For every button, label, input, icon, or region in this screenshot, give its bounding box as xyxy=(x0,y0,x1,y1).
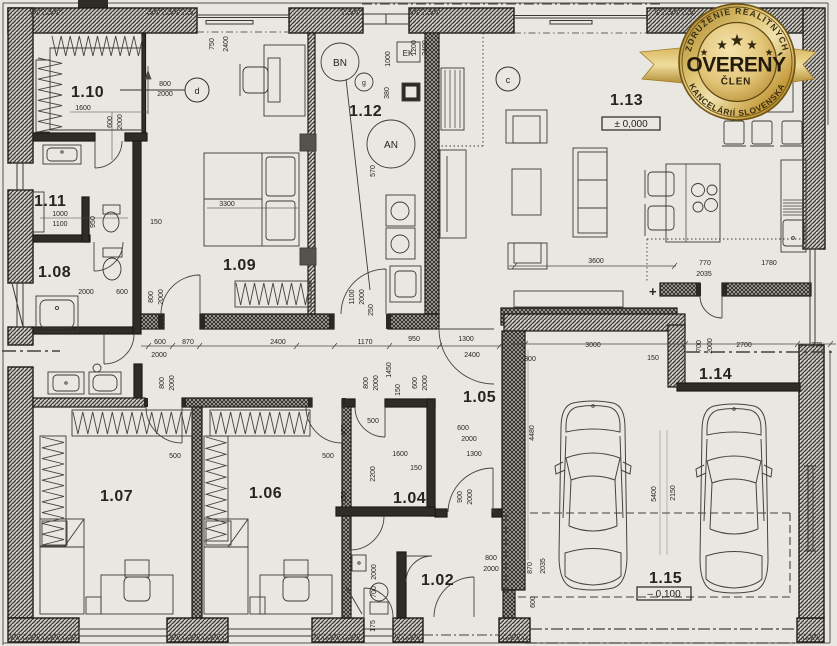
svg-text:1.13: 1.13 xyxy=(610,92,643,109)
svg-text:2400: 2400 xyxy=(422,40,429,56)
svg-text:ČLEN: ČLEN xyxy=(721,75,751,88)
svg-text:600: 600 xyxy=(154,339,166,346)
svg-text:1.11: 1.11 xyxy=(34,193,66,210)
svg-text:2000: 2000 xyxy=(157,91,173,98)
svg-text:2150: 2150 xyxy=(670,485,677,501)
svg-text:600: 600 xyxy=(116,289,128,296)
svg-text:800: 800 xyxy=(363,377,370,389)
svg-text:3300: 3300 xyxy=(219,201,235,208)
svg-text:1100: 1100 xyxy=(52,221,67,228)
svg-text:4480: 4480 xyxy=(529,425,536,441)
svg-text:1.12: 1.12 xyxy=(349,103,382,120)
svg-text:EK: EK xyxy=(403,49,414,58)
svg-text:1.10: 1.10 xyxy=(71,84,104,101)
svg-text:150: 150 xyxy=(341,491,348,503)
svg-text:500: 500 xyxy=(322,453,334,460)
svg-text:2035: 2035 xyxy=(540,558,547,574)
svg-text:1.07: 1.07 xyxy=(100,488,133,505)
svg-text:2035: 2035 xyxy=(696,271,712,278)
svg-text:5400: 5400 xyxy=(651,486,658,502)
svg-text:2400: 2400 xyxy=(464,352,480,359)
svg-text:950: 950 xyxy=(408,336,420,343)
svg-text:375: 375 xyxy=(811,342,823,349)
svg-text:870: 870 xyxy=(182,339,194,346)
svg-text:600: 600 xyxy=(457,425,469,432)
svg-text:800: 800 xyxy=(159,377,166,389)
svg-text:1000: 1000 xyxy=(385,51,392,67)
svg-text:800: 800 xyxy=(159,81,171,88)
svg-text:AN: AN xyxy=(384,140,398,151)
svg-text:150: 150 xyxy=(410,465,422,472)
svg-text:600: 600 xyxy=(530,596,537,608)
svg-text:700: 700 xyxy=(371,586,378,598)
svg-text:600: 600 xyxy=(107,116,114,128)
svg-text:150: 150 xyxy=(150,219,162,226)
svg-text:2000: 2000 xyxy=(373,375,380,391)
svg-text:2000: 2000 xyxy=(117,114,124,130)
svg-text:900: 900 xyxy=(457,491,464,503)
svg-text:1.15: 1.15 xyxy=(649,570,682,587)
svg-text:OVERENÝ: OVERENÝ xyxy=(686,53,786,77)
svg-text:± 0,000: ± 0,000 xyxy=(614,119,648,130)
svg-text:1.08: 1.08 xyxy=(38,264,71,281)
svg-text:g: g xyxy=(362,80,366,87)
svg-text:570: 570 xyxy=(370,165,377,177)
svg-text:150: 150 xyxy=(395,384,402,396)
svg-text:150: 150 xyxy=(341,424,348,436)
svg-text:2000: 2000 xyxy=(371,564,378,580)
svg-text:150: 150 xyxy=(647,355,659,362)
svg-text:2700: 2700 xyxy=(736,342,752,349)
svg-text:800: 800 xyxy=(485,555,497,562)
svg-text:+: + xyxy=(649,284,657,299)
svg-text:2000: 2000 xyxy=(707,338,714,354)
svg-text:175: 175 xyxy=(370,620,377,632)
svg-text:1170: 1170 xyxy=(357,339,372,346)
svg-text:2000: 2000 xyxy=(78,289,94,296)
svg-text:1300: 1300 xyxy=(458,336,474,343)
svg-text:500: 500 xyxy=(169,453,181,460)
svg-text:2000: 2000 xyxy=(158,289,165,305)
svg-text:d: d xyxy=(194,86,199,96)
svg-text:500: 500 xyxy=(367,418,379,425)
svg-text:700: 700 xyxy=(696,340,703,352)
svg-text:1300: 1300 xyxy=(466,451,482,458)
svg-text:1100: 1100 xyxy=(349,289,356,304)
svg-text:2200: 2200 xyxy=(370,466,377,482)
svg-text:2000: 2000 xyxy=(169,375,176,391)
svg-text:1.04: 1.04 xyxy=(393,490,426,507)
svg-text:870: 870 xyxy=(527,562,534,574)
svg-text:3000: 3000 xyxy=(585,342,601,349)
svg-text:BN: BN xyxy=(333,58,347,69)
svg-text:1600: 1600 xyxy=(392,451,408,458)
svg-text:300: 300 xyxy=(524,356,536,363)
svg-text:2000: 2000 xyxy=(461,436,477,443)
svg-text:1600: 1600 xyxy=(75,105,91,112)
svg-text:950: 950 xyxy=(90,216,97,228)
svg-text:380: 380 xyxy=(384,87,391,99)
svg-text:2400: 2400 xyxy=(223,36,230,52)
svg-text:2000: 2000 xyxy=(483,566,499,573)
svg-text:1.06: 1.06 xyxy=(249,485,282,502)
svg-text:3600: 3600 xyxy=(588,258,604,265)
svg-text:2400: 2400 xyxy=(270,339,286,346)
svg-text:750: 750 xyxy=(209,38,216,50)
svg-text:2000: 2000 xyxy=(422,375,429,391)
svg-text:770: 770 xyxy=(699,260,711,267)
svg-text:1.05: 1.05 xyxy=(463,389,496,406)
svg-text:1.02: 1.02 xyxy=(421,572,454,589)
svg-text:2000: 2000 xyxy=(359,289,366,305)
svg-text:c: c xyxy=(506,75,511,85)
svg-text:600: 600 xyxy=(412,377,419,389)
svg-text:1.09: 1.09 xyxy=(223,257,256,274)
svg-text:250: 250 xyxy=(368,304,375,316)
svg-text:1780: 1780 xyxy=(761,260,777,267)
svg-text:2000: 2000 xyxy=(151,352,167,359)
svg-text:2000: 2000 xyxy=(467,489,474,505)
svg-text:1.14: 1.14 xyxy=(699,366,732,383)
svg-text:800: 800 xyxy=(148,291,155,303)
svg-text:– 0,100: – 0,100 xyxy=(647,589,681,600)
svg-text:1450: 1450 xyxy=(386,362,393,378)
svg-text:1000: 1000 xyxy=(52,211,68,218)
